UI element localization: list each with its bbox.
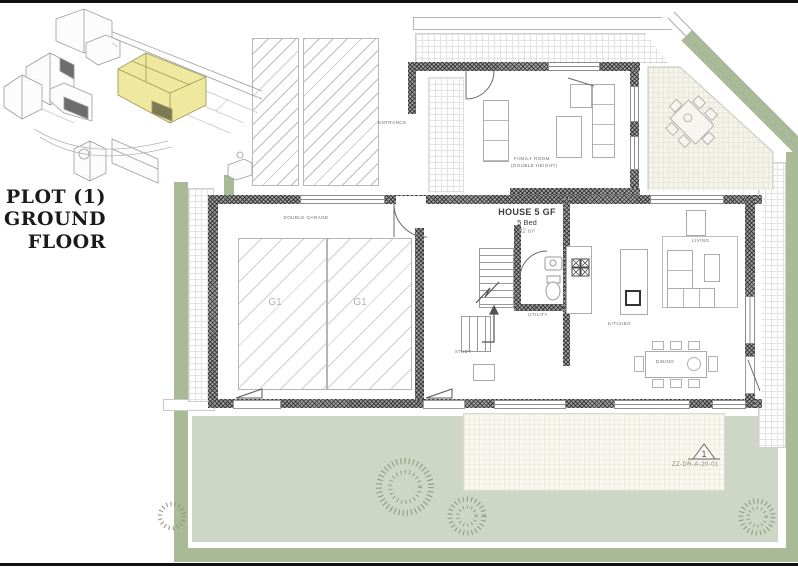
label-family-room-note: (DOUBLE HEIGHT) xyxy=(511,163,558,168)
stair-lower-flight xyxy=(461,316,491,352)
garage-door-2 xyxy=(423,400,465,409)
dining-chair xyxy=(670,379,682,388)
label-utility: UTILITY xyxy=(528,312,548,317)
study-desk xyxy=(473,364,495,381)
wall-wc-bottom xyxy=(514,304,570,311)
kitchen-island xyxy=(620,249,648,315)
familyroom-coffee-table xyxy=(556,116,582,158)
window-rear-3 xyxy=(712,400,746,409)
label-double-garage: DOUBLE GARAGE xyxy=(258,215,354,220)
dining-chair xyxy=(688,379,700,388)
living-side-table xyxy=(686,210,706,236)
label-living: LIVING xyxy=(690,238,711,243)
stair-upper-flight xyxy=(479,248,514,308)
living-sofa-horizontal xyxy=(667,288,715,308)
axon-house xyxy=(228,159,252,180)
drawing-reference: ZZ-DR-A-20-01 xyxy=(672,462,719,468)
label-study: STUDY xyxy=(455,349,471,354)
wall-wc-left xyxy=(514,225,521,311)
garden-strip-bottom xyxy=(174,548,798,562)
terrace xyxy=(648,67,773,190)
title-line: FLOOR xyxy=(0,231,106,253)
dining-chair xyxy=(708,356,718,372)
wall-familyroom-top xyxy=(408,62,640,71)
dining-bowl xyxy=(687,357,701,371)
house-name: HOUSE 5 GF xyxy=(477,207,577,217)
window-rear-1 xyxy=(494,400,566,409)
window-rear-2 xyxy=(614,400,690,409)
dining-chair xyxy=(688,341,700,350)
entrance-porch-floor xyxy=(428,77,464,192)
garden-strip-left xyxy=(174,182,188,562)
wall-main-left xyxy=(208,195,218,408)
house-area: 92 m² xyxy=(477,228,577,235)
familyroom-sofa-corner xyxy=(570,84,592,108)
floor-plan-sheet: 1 xyxy=(0,0,798,568)
label-family-room: FAMILY ROOM xyxy=(514,156,550,161)
title-block: PLOT (1) GROUND FLOOR xyxy=(0,186,106,253)
title-line: GROUND xyxy=(0,208,106,230)
page-border-bottom xyxy=(0,563,798,566)
garage-bay-1 xyxy=(238,238,327,390)
dining-chair xyxy=(634,356,644,372)
dining-chair xyxy=(652,379,664,388)
rear-patio xyxy=(463,413,725,491)
house-info: HOUSE 5 GF 5 Bed 92 m² xyxy=(477,207,577,235)
boundary-band-top xyxy=(413,17,672,30)
dining-chair xyxy=(670,341,682,350)
door-opening-hall xyxy=(396,196,426,204)
wall-utility xyxy=(563,311,570,366)
window-living-right xyxy=(745,296,755,344)
dining-chair xyxy=(652,341,664,350)
label-entrance: ENTRANCE xyxy=(378,120,406,125)
neighbour-roof-2 xyxy=(303,38,379,186)
label-dining: DINING xyxy=(650,359,680,364)
title-line: PLOT (1) xyxy=(0,186,106,208)
window-familyroom-top xyxy=(548,62,600,71)
label-kitchen: KITCHEN xyxy=(608,321,631,326)
garden-strip-right xyxy=(786,152,798,562)
window-familyroom-right-1 xyxy=(630,86,639,122)
window-kitchen-top xyxy=(650,195,724,204)
wall-familyroom-left xyxy=(408,62,416,114)
axonometric-view xyxy=(0,3,266,187)
axon-garage-block xyxy=(112,139,158,183)
house-beds: 5 Bed xyxy=(477,218,577,227)
wall-garage-hall xyxy=(415,228,424,400)
familyroom-sofa-right xyxy=(592,84,615,158)
familyroom-sofa-left xyxy=(483,100,509,162)
window-garage-top xyxy=(300,195,385,204)
window-familyroom-right-2 xyxy=(630,136,639,170)
path-top xyxy=(415,33,668,63)
terrace-door-opening xyxy=(745,356,755,394)
path-right xyxy=(758,162,786,448)
label-garage-bay-2: G1 xyxy=(342,297,378,308)
garage-bay-2 xyxy=(327,238,412,390)
garage-door-1 xyxy=(233,400,281,409)
kitchen-counter xyxy=(566,246,592,314)
living-armchair xyxy=(704,254,720,282)
label-garage-bay-1: G1 xyxy=(257,297,293,308)
